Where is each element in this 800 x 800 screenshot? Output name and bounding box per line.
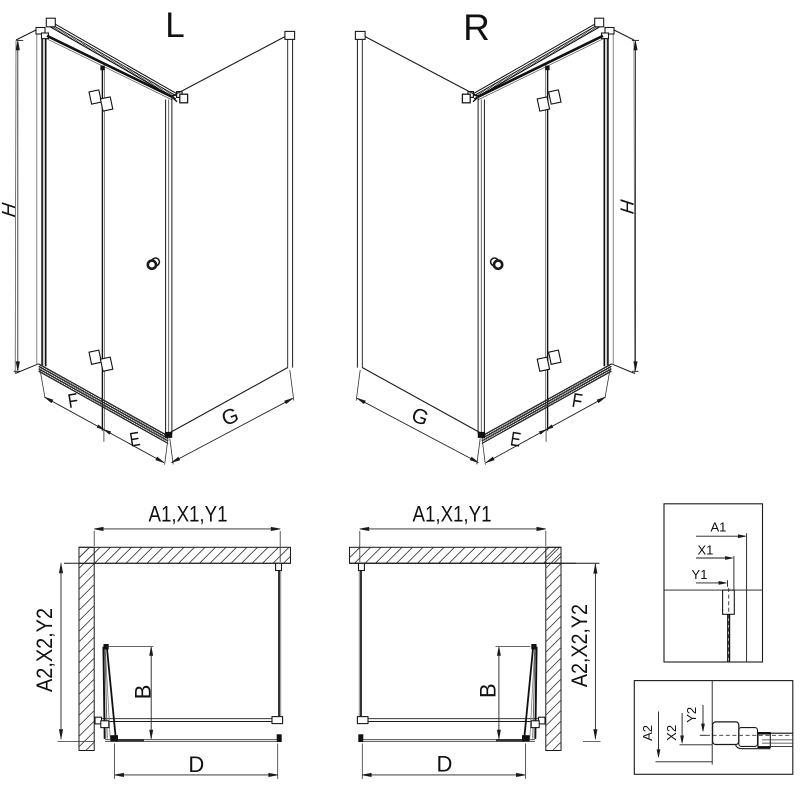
svg-text:A1: A1 <box>710 520 726 535</box>
svg-text:A2,X2,Y2: A2,X2,Y2 <box>32 608 57 692</box>
svg-text:A1,X1,Y1: A1,X1,Y1 <box>149 501 228 526</box>
svg-text:D: D <box>437 752 453 777</box>
svg-text:Y2: Y2 <box>684 707 699 723</box>
svg-text:D: D <box>188 752 204 777</box>
svg-text:X2: X2 <box>664 725 679 741</box>
svg-text:R: R <box>463 7 490 48</box>
svg-text:A2: A2 <box>640 725 655 741</box>
svg-text:X1: X1 <box>697 542 713 557</box>
svg-text:B: B <box>476 683 501 698</box>
svg-text:L: L <box>165 6 184 45</box>
svg-text:A2,X2,Y2: A2,X2,Y2 <box>567 604 592 687</box>
svg-text:A1,X1,Y1: A1,X1,Y1 <box>413 501 492 526</box>
svg-text:B: B <box>130 685 155 700</box>
svg-text:Y1: Y1 <box>692 567 708 582</box>
